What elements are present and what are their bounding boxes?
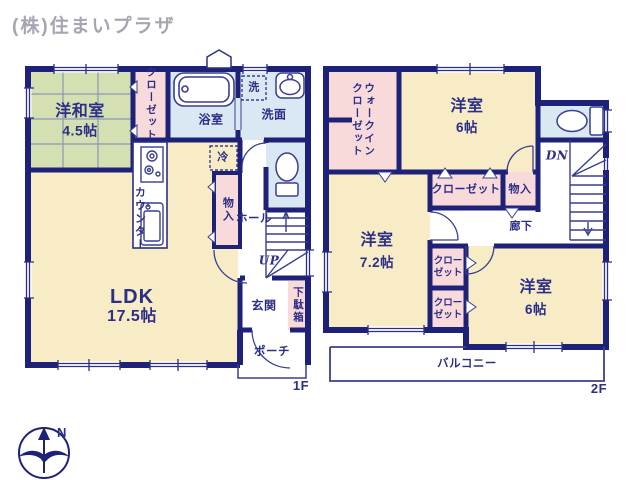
room-label-washitsu: 洋和室 — [55, 102, 105, 122]
compass-north-label: N — [57, 425, 67, 441]
room-label-closet-1f: クローゼット — [145, 67, 157, 142]
toilet-1f-icon — [276, 153, 298, 196]
room-label-bath: 浴室 — [198, 113, 223, 128]
room-label-wic: ウォークイン クローゼット — [351, 83, 375, 158]
room-label-washroom: 洗面 — [261, 108, 286, 123]
floor1-label: 1F — [293, 378, 309, 394]
bedroom2-area — [326, 172, 430, 330]
room-label-hallway: 廊下 — [510, 220, 533, 233]
label-storage-2f: 物入 — [509, 183, 532, 196]
room-label-hall: ホール — [236, 212, 272, 226]
room-label-closet-wide: クローゼット — [432, 183, 501, 196]
washbasin-icon — [276, 73, 304, 98]
label-counter: カウンター — [133, 187, 146, 252]
room-size-washitsu: 4.5帖 — [62, 122, 97, 139]
label-stairs-up: UP — [259, 254, 280, 269]
room-label-entrance: 玄関 — [251, 299, 276, 314]
room-label-balcony: バルコニー — [437, 357, 497, 371]
label-fridge-space: 冷 — [217, 151, 229, 164]
room-label-porch: ポーチ — [254, 345, 290, 359]
room-label-bedroom2: 洋室 — [360, 231, 393, 251]
ldk-area-2 — [28, 170, 133, 365]
company-name: (株)住まいプラザ — [12, 11, 176, 38]
label-shoe-box: 下駄箱 — [292, 286, 304, 324]
label-laundry-space: 洗 — [248, 81, 260, 94]
room-size-bedroom2: 7.2帖 — [360, 255, 394, 271]
room-label-bedroom1: 洋室 — [450, 97, 483, 117]
vent-icon — [207, 50, 231, 68]
room-label-closet-b: クロー ゼット — [434, 297, 463, 320]
floor-plan-drawing — [0, 0, 640, 480]
room-label-closet-a: クロー ゼット — [434, 255, 463, 278]
room-size-ldk: 17.5帖 — [107, 307, 157, 327]
floor2-label: 2F — [591, 381, 607, 397]
bathtub-icon — [174, 73, 234, 106]
label-storage-1f: 物入 — [221, 197, 234, 223]
stairs-2f-icon — [570, 140, 606, 240]
stove-icon — [141, 147, 163, 182]
room-label-bedroom3: 洋室 — [519, 278, 552, 298]
label-stairs-down: DN — [546, 149, 568, 164]
room-label-ldk: LDK — [110, 285, 154, 309]
room-size-bedroom3: 6帖 — [525, 302, 547, 318]
porch-outline — [238, 365, 306, 378]
floor-plan: (株)住まいプラザ 洋和室 4.5帖 クローゼット 浴室 洗面 洗 冷 カウンタ… — [0, 0, 640, 480]
room-size-bedroom1: 6帖 — [456, 120, 478, 136]
